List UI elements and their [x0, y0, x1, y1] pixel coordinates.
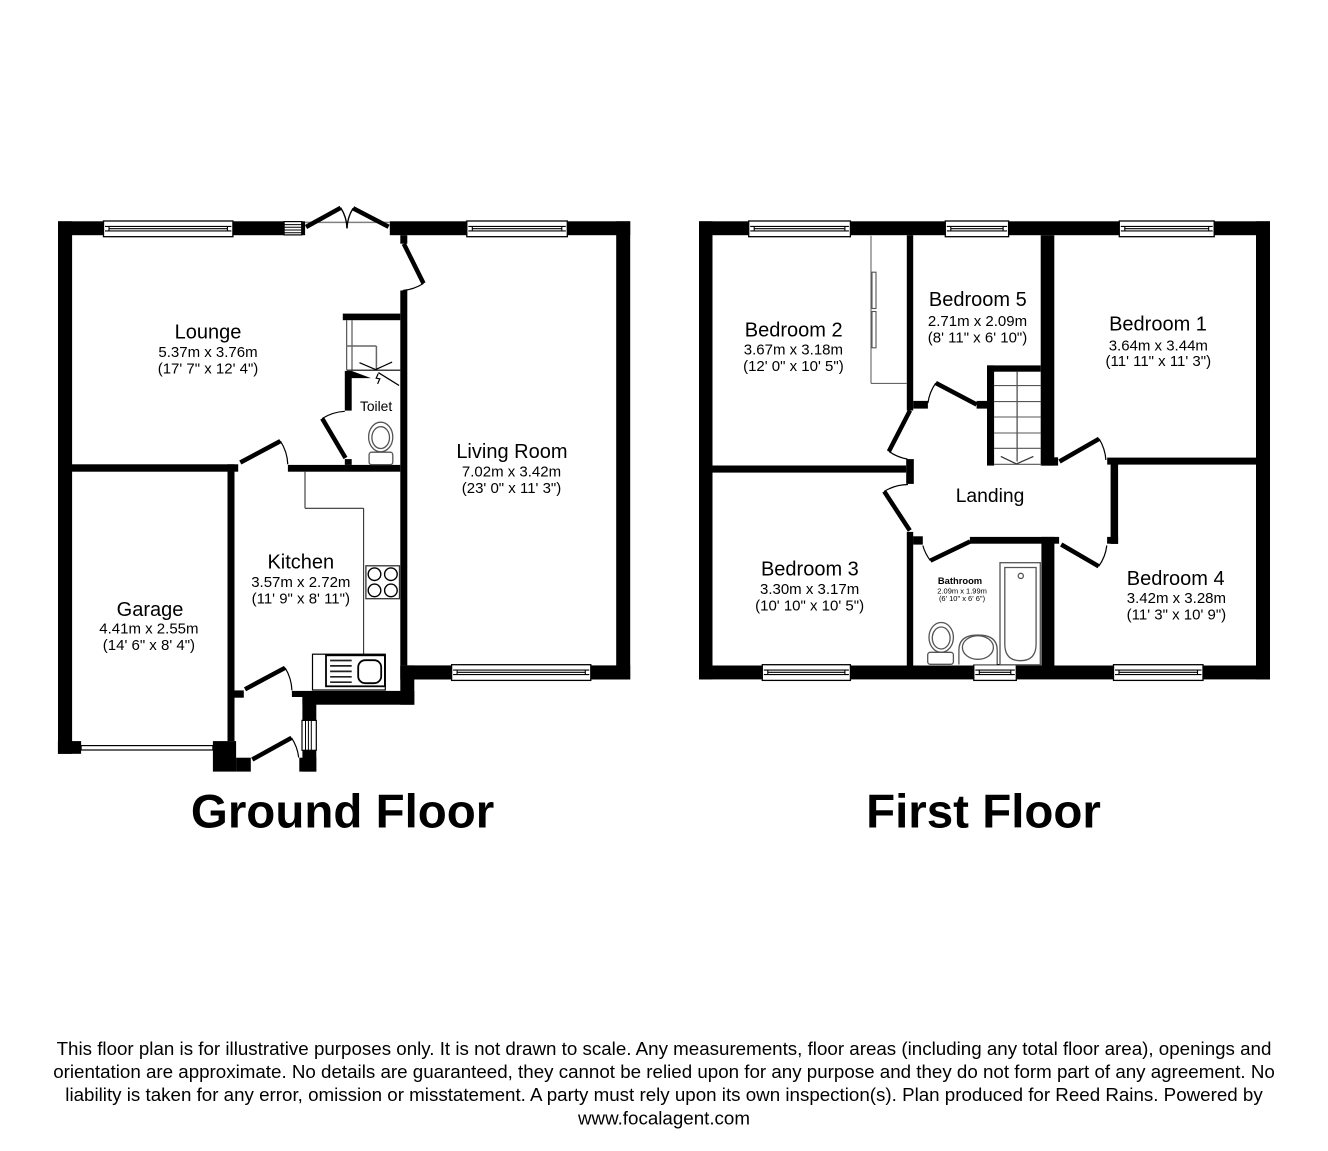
svg-text:Bedroom 2: Bedroom 2	[745, 319, 843, 341]
svg-text:Bedroom 1: Bedroom 1	[1109, 314, 1207, 336]
svg-text:(23' 0" x 11' 3"): (23' 0" x 11' 3")	[462, 480, 561, 497]
svg-text:First Floor: First Floor	[866, 786, 1101, 839]
svg-text:orientation are approximate. N: orientation are approximate. No details …	[53, 1061, 1275, 1082]
svg-text:3.57m x 2.72m: 3.57m x 2.72m	[251, 574, 350, 591]
svg-text:Toilet: Toilet	[360, 399, 392, 414]
svg-text:Lounge: Lounge	[175, 322, 242, 344]
svg-text:(10' 10" x 10' 5"): (10' 10" x 10' 5")	[755, 598, 864, 615]
svg-text:Ground Floor: Ground Floor	[191, 786, 494, 839]
svg-text:4.41m x 2.55m: 4.41m x 2.55m	[99, 621, 198, 638]
svg-text:www.focalagent.com: www.focalagent.com	[577, 1107, 750, 1128]
svg-text:(8' 11" x 6' 10"): (8' 11" x 6' 10")	[928, 329, 1027, 346]
svg-text:Bedroom 3: Bedroom 3	[761, 559, 859, 581]
svg-text:Bathroom: Bathroom	[938, 575, 982, 586]
svg-text:3.42m x 3.28m: 3.42m x 3.28m	[1127, 590, 1226, 607]
svg-text:(11' 9" x 8' 11"): (11' 9" x 8' 11")	[252, 591, 350, 608]
svg-text:3.67m x 3.18m: 3.67m x 3.18m	[744, 342, 843, 359]
svg-text:(11' 3" x 10' 9"): (11' 3" x 10' 9")	[1127, 607, 1226, 624]
svg-text:(12' 0" x 10' 5"): (12' 0" x 10' 5")	[743, 358, 844, 375]
svg-text:Living Room: Living Room	[456, 441, 567, 463]
svg-text:This floor plan is for illustr: This floor plan is for illustrative purp…	[57, 1038, 1272, 1059]
svg-text:2.71m x 2.09m: 2.71m x 2.09m	[928, 313, 1027, 330]
svg-text:(11' 11" x 11' 3"): (11' 11" x 11' 3")	[1106, 353, 1212, 370]
svg-text:Bedroom 4: Bedroom 4	[1127, 568, 1225, 590]
svg-text:liability is taken for any err: liability is taken for any error, omissi…	[65, 1084, 1263, 1105]
svg-text:3.30m x 3.17m: 3.30m x 3.17m	[760, 581, 859, 598]
svg-text:(6' 10" x 6' 6"): (6' 10" x 6' 6")	[939, 594, 986, 603]
svg-text:Landing: Landing	[956, 486, 1025, 507]
svg-text:7.02m x 3.42m: 7.02m x 3.42m	[462, 464, 561, 481]
svg-text:Garage: Garage	[117, 599, 184, 621]
svg-text:5.37m x 3.76m: 5.37m x 3.76m	[158, 344, 257, 361]
svg-text:Kitchen: Kitchen	[267, 552, 334, 574]
svg-text:(14' 6" x 8' 4"): (14' 6" x 8' 4")	[103, 637, 195, 654]
svg-text:Bedroom 5: Bedroom 5	[929, 289, 1027, 311]
svg-text:(17' 7" x 12' 4"): (17' 7" x 12' 4")	[158, 360, 259, 377]
